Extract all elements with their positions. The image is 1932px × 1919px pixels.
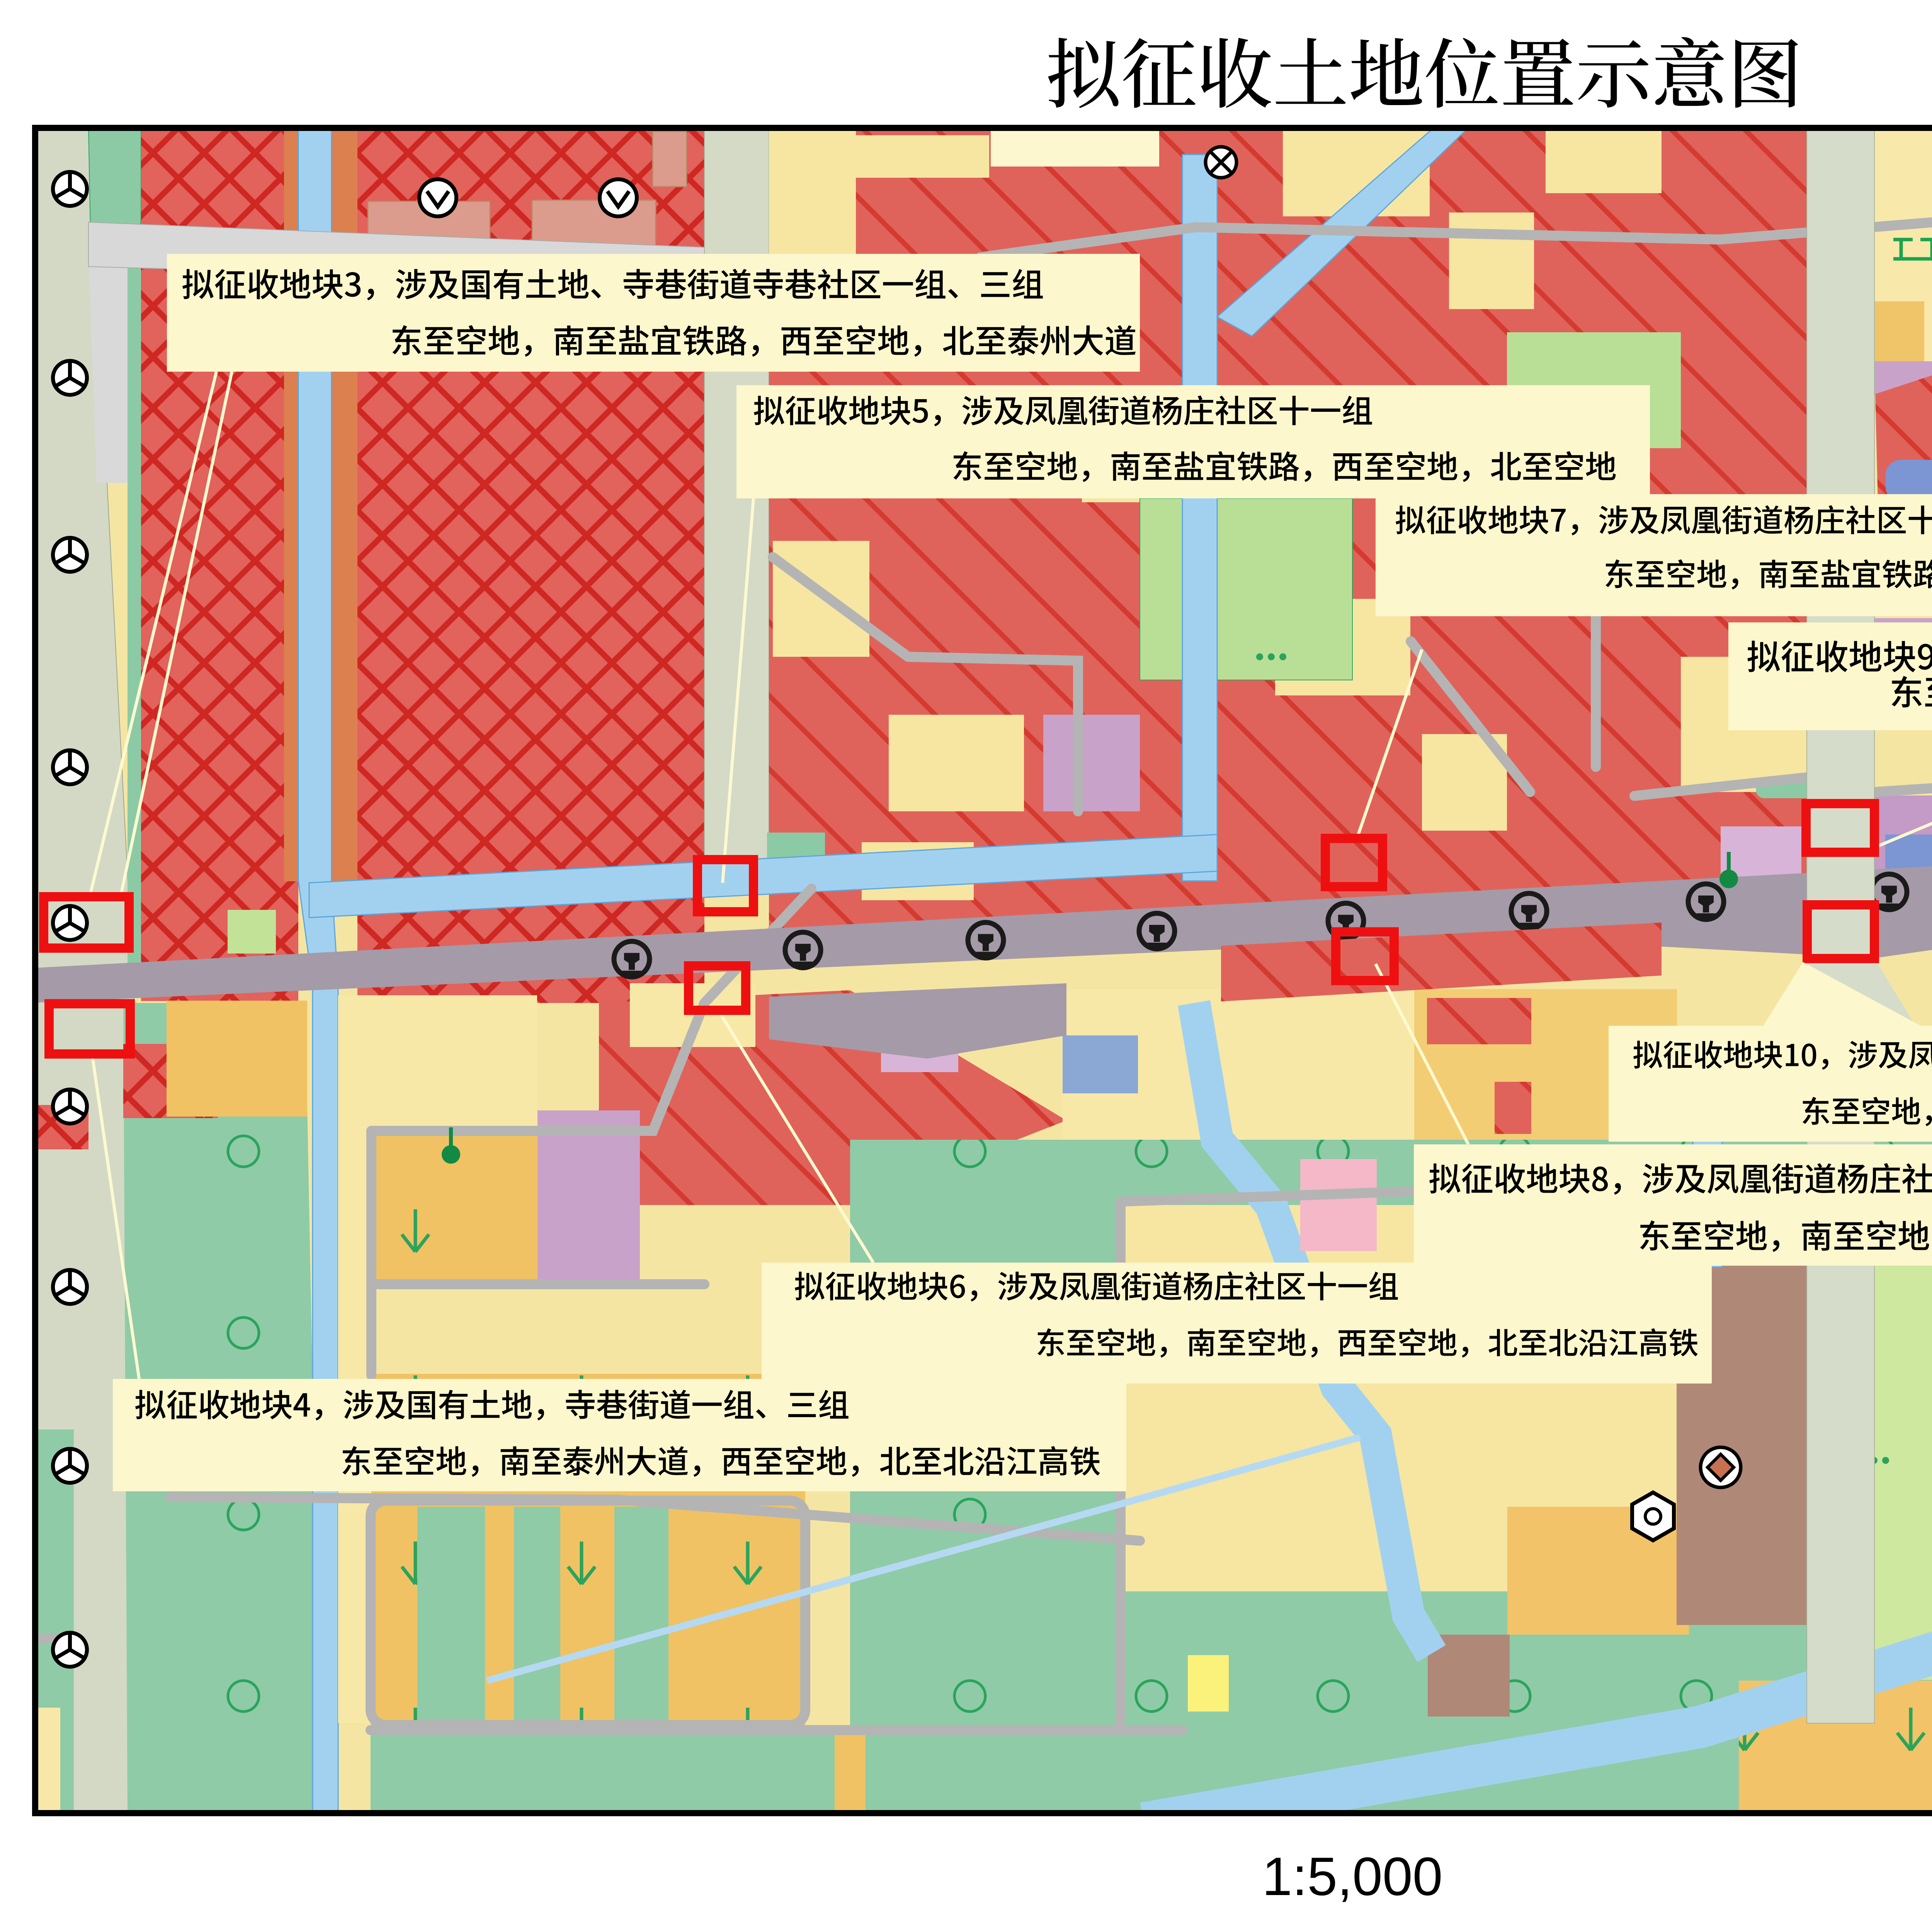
svg-text:1:5,000: 1:5,000	[1262, 1846, 1442, 1907]
